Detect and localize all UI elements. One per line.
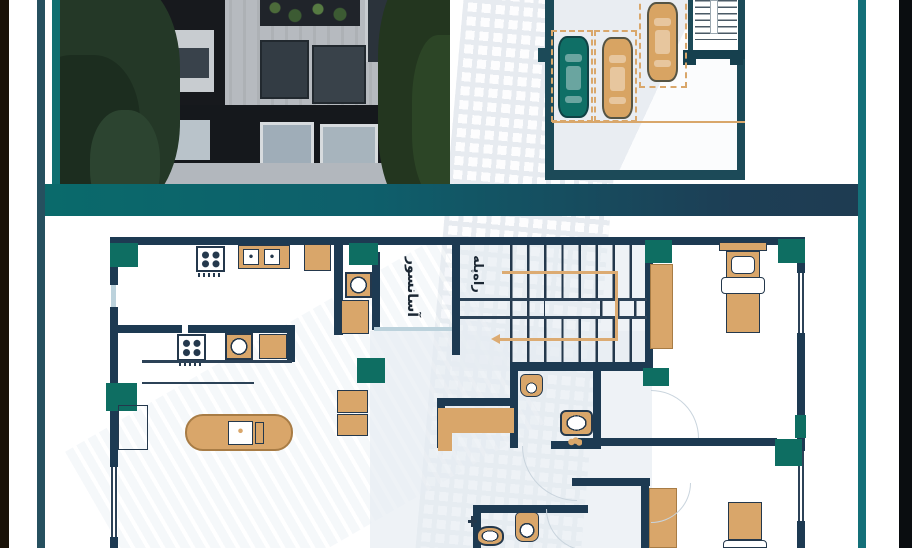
parking-stairwell [688,0,738,56]
wall-stairs-bottom [510,362,647,371]
stair-arrow-head [491,334,500,344]
sofa [438,408,514,433]
building-photo [60,0,450,184]
car-tan [647,2,678,82]
column [357,358,385,383]
window-line [798,273,800,333]
stair-divider [710,0,718,34]
screen-edge-left [0,0,9,548]
column [349,243,378,265]
frame-line-left [37,0,45,548]
column [645,240,672,263]
staircase-label: راه‌پله [469,245,485,303]
wardrobe [650,264,673,349]
elevator-label: آسانسور [404,251,420,323]
island-chair [255,422,264,444]
car-rear-window [609,97,626,104]
stair-treads-mid [600,301,645,316]
wall-room-divider [572,478,650,486]
cabinet [337,414,368,436]
bed-pillow [723,540,767,548]
wall-bedroom2-left [641,483,649,548]
parking-column [730,52,743,65]
window-glass [260,122,314,168]
stair-arrow [502,271,618,274]
wall-left [110,307,118,385]
bed-body [726,293,760,333]
window-line [802,451,804,521]
bed-pillow [721,277,765,294]
plant-icon [568,437,582,446]
wall-kitchen-divider [188,325,295,333]
column [795,415,806,438]
sofa [438,433,452,451]
washing-machine-icon [225,333,253,360]
roof-planter [260,0,360,26]
bed-headboard [728,502,762,540]
car-roof [566,66,581,90]
parking-column-nub [538,48,545,62]
sink-basin [243,249,259,265]
car-windshield [565,54,582,62]
stove-icon [196,246,225,272]
car-rear-window [565,96,582,103]
cabinet [337,390,368,413]
sink-basin [264,249,280,265]
wall-left [110,537,118,548]
column [643,368,669,386]
car-teal [558,36,589,118]
frame-line-right [858,0,866,548]
column [775,439,802,466]
fridge [304,244,331,271]
parking-wall-bottom [545,170,745,180]
stair-landing-line [460,316,647,319]
stove-grill [198,273,223,277]
wall-stub [287,325,295,362]
wall-elevator-right [452,237,460,355]
cabinet [341,300,369,334]
stair-treads-mid [510,301,545,316]
window-line [111,467,113,537]
car-roof [610,67,625,91]
window-line [115,467,117,537]
wall-left [110,411,118,467]
toilet-icon [515,512,539,542]
car-tan [602,37,633,119]
wall-right [797,521,805,548]
elevator-door [374,327,452,331]
architectural-poster: آسانسور راه‌پله [0,0,912,548]
cabinet [259,334,287,359]
parking-wall-right [737,0,745,180]
stove-icon [177,334,206,361]
column [110,243,138,267]
car-roof [655,30,670,54]
stair-arrow [615,271,618,341]
bed-inset [731,256,755,274]
facade-base [160,163,395,184]
car-rear-window [654,60,671,67]
island-table [185,414,293,451]
closet-outline [118,405,148,450]
wall-hall [437,398,512,406]
wall-kitchen-divider [118,325,182,333]
wall-room-divider [577,438,777,446]
stair-arrow [500,338,618,341]
screen-edge-right [899,0,912,548]
door-leaf [111,285,116,307]
tree-right [412,35,450,184]
photo-frame-left [52,0,60,184]
car-windshield [654,18,671,26]
faucet-icon [468,520,477,523]
wall-right [797,333,805,415]
basin-icon [476,526,504,546]
column [778,239,805,263]
counter-line [142,382,254,384]
banner [45,184,858,216]
island-sink [228,421,253,445]
window-glass [177,48,209,78]
washing-machine-icon [345,272,372,298]
car-windshield [609,55,626,63]
counter-line [142,360,292,363]
bed-headboard [719,242,767,251]
window-line [802,273,804,333]
vanity-sink-icon [560,410,593,436]
window-glass [260,40,309,99]
window-glass [312,45,366,104]
toilet-icon [520,374,543,397]
